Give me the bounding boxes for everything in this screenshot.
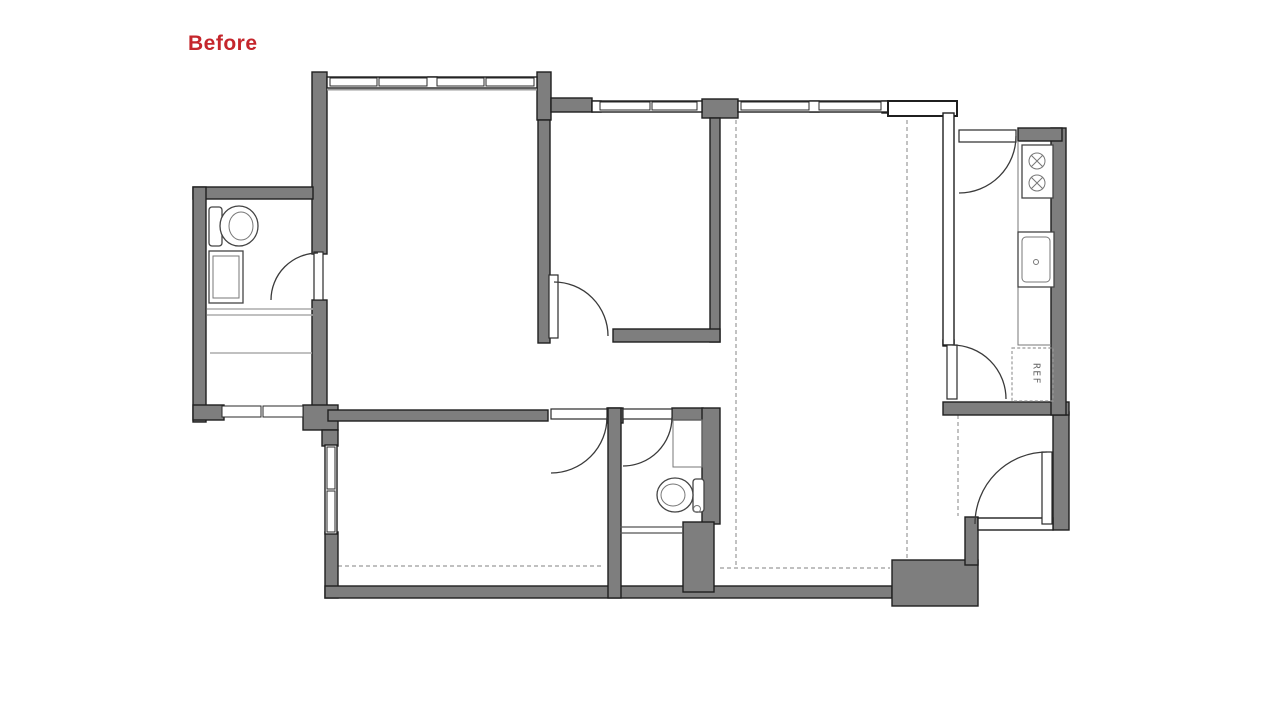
door-leaf — [1042, 452, 1052, 524]
door-swing-arc — [551, 417, 607, 473]
door-swing-arc — [554, 282, 608, 336]
wall-bath2-top — [672, 408, 703, 420]
window-pane — [379, 78, 427, 86]
door-entry — [975, 452, 1052, 524]
wall-bottom-room-right — [608, 408, 621, 598]
vanity-counter — [209, 251, 243, 303]
door-bottom-room — [551, 409, 607, 473]
kitchen-sink — [1018, 232, 1054, 287]
window-pane — [330, 78, 377, 86]
wall-pillar-left — [537, 72, 551, 120]
wall-kitchen-bottom — [943, 402, 1069, 415]
floor-plan-page: Before — [0, 0, 1280, 720]
window-pane — [437, 78, 484, 86]
door-bedroom2 — [549, 275, 608, 338]
window-pane — [600, 102, 650, 110]
floor-plan-drawing: REF — [0, 0, 1280, 720]
door-swing-arc — [959, 136, 1016, 193]
door-swing-arc — [975, 452, 1047, 524]
wall-bedroom2-left — [538, 120, 550, 343]
door-leaf — [959, 130, 1016, 142]
wall-step-block — [892, 560, 978, 606]
door-swing-arc — [952, 345, 1006, 399]
toilet-bath2 — [657, 478, 704, 513]
door-kitchen-bottom — [947, 345, 1006, 399]
toilet-bath1 — [209, 206, 258, 246]
window-bath1-a — [222, 406, 261, 417]
vanity-bath2 — [673, 420, 702, 467]
wall-bath1-top — [193, 187, 313, 199]
wall-bedroom1-left-upper — [312, 72, 327, 254]
wall-pillar-arm — [551, 98, 592, 112]
door-swing-arc — [271, 253, 318, 300]
vanity-bath1 — [209, 251, 243, 303]
door-leaf — [947, 345, 957, 399]
doors — [271, 130, 1052, 524]
wall-bedroom1-left-lower — [312, 300, 327, 412]
window-pane — [486, 78, 534, 86]
wall-corner-b — [322, 430, 338, 446]
door-swing-arc — [623, 417, 672, 466]
wall-bedroom1-bottom — [328, 410, 548, 421]
wall-entry-right — [1053, 412, 1069, 530]
wall-bath2-chunk — [683, 522, 714, 592]
wall-bedroom2-right — [710, 118, 720, 342]
door-leaf — [623, 409, 672, 419]
door-kitchen-top — [959, 130, 1016, 193]
wall-entry-stub — [965, 517, 978, 565]
window-bath1-b — [263, 406, 303, 417]
window-pane — [652, 102, 697, 110]
dashed-guide-lines — [338, 120, 958, 568]
wall-bedroom2-bottom — [613, 329, 720, 342]
wall-bath2-right — [702, 408, 720, 524]
door-leaf — [549, 275, 558, 338]
window-pane — [819, 102, 881, 110]
wall-bath1-bottom-left — [193, 405, 224, 420]
wall-living-kitchen — [943, 113, 954, 345]
door-bath2 — [623, 409, 672, 466]
door-bath1 — [271, 252, 323, 300]
door-leaf — [551, 409, 607, 419]
window-pane — [327, 491, 335, 532]
wall-pillar-mid — [702, 99, 738, 118]
window-pane — [741, 102, 809, 110]
stove — [1022, 145, 1053, 198]
door-leaf — [314, 252, 323, 300]
wall-bath1-left — [193, 187, 206, 422]
window-pane — [327, 447, 335, 489]
refrigerator: REF — [1012, 348, 1053, 401]
refrigerator-label: REF — [1031, 363, 1042, 385]
toilet-bowl — [657, 478, 693, 512]
wall-kitchen-top — [1018, 128, 1062, 141]
